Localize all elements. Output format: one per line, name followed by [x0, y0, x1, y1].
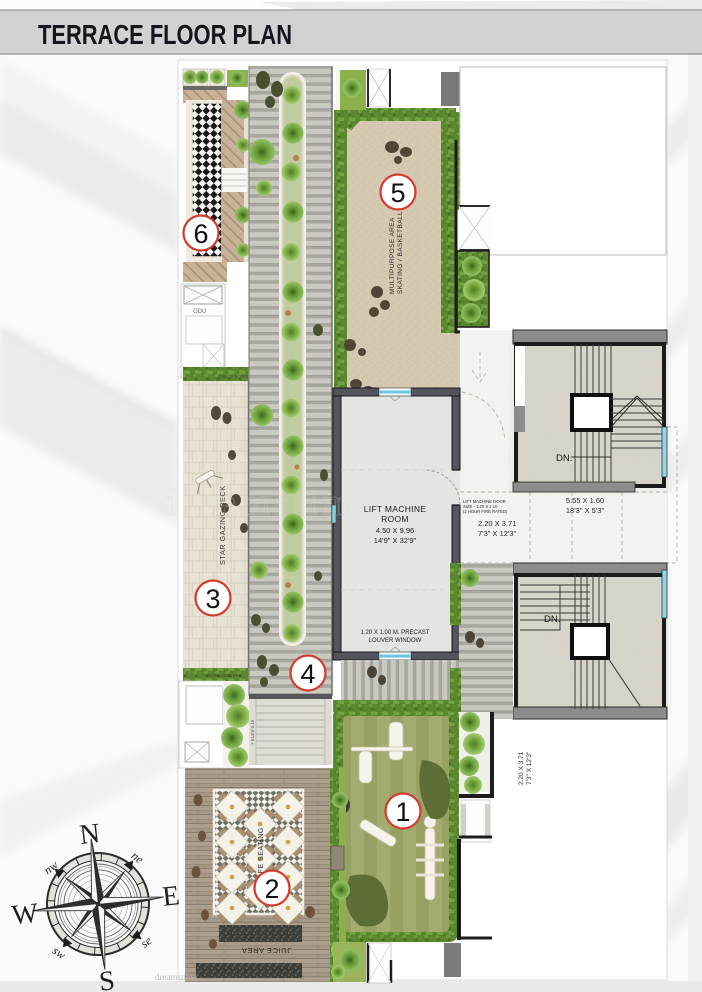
svg-text:GREEN SCREENS: GREEN SCREENS: [205, 673, 242, 678]
svg-text:MULTIPURPOSE AREA: MULTIPURPOSE AREA: [389, 217, 396, 294]
svg-text:1: 1: [395, 797, 410, 827]
svg-text:4: 4: [300, 659, 315, 689]
svg-text:dreamstime: dreamstime: [159, 482, 376, 524]
svg-text:(2 HOUR FIRE RATED): (2 HOUR FIRE RATED): [463, 509, 508, 514]
svg-text:14'9" X 32'9": 14'9" X 32'9": [374, 536, 417, 545]
svg-text:E: E: [161, 880, 181, 913]
svg-text:5: 5: [390, 178, 405, 208]
svg-text:4.50 X 9.96: 4.50 X 9.96: [376, 526, 414, 535]
svg-text:SKATING / BASKETBALL: SKATING / BASKETBALL: [397, 211, 404, 294]
svg-text:dreamstime: dreamstime: [155, 972, 197, 982]
svg-text:3: 3: [205, 584, 220, 614]
svg-text:1.20 X 1.00 M. PRECAST: 1.20 X 1.00 M. PRECAST: [360, 630, 429, 636]
svg-text:TERRACE FLOOR PLAN: TERRACE FLOOR PLAN: [38, 19, 292, 50]
svg-text:DN.: DN.: [556, 453, 572, 464]
svg-text:7'3" X 12'3": 7'3" X 12'3": [526, 751, 533, 785]
svg-text:LOUVER WINDOW: LOUVER WINDOW: [369, 638, 422, 644]
svg-text:ODU: ODU: [193, 309, 206, 315]
svg-text:2: 2: [264, 874, 279, 904]
svg-text:JUICE AREA: JUICE AREA: [241, 946, 291, 955]
svg-text:2.20 X 3.71: 2.20 X 3.71: [518, 751, 525, 785]
svg-text:DN.: DN.: [544, 614, 560, 625]
svg-text:N: N: [78, 818, 101, 851]
svg-text:18'3" X 5'3": 18'3" X 5'3": [566, 506, 605, 515]
svg-text:W: W: [10, 898, 40, 932]
svg-text:+ ELEV 0.15: + ELEV 0.15: [250, 719, 255, 745]
svg-text:ROOM: ROOM: [381, 514, 409, 524]
svg-text:7'3" X 12'3": 7'3" X 12'3": [478, 529, 517, 538]
svg-text:6: 6: [193, 219, 208, 249]
svg-text:5.55 X 1.60: 5.55 X 1.60: [566, 496, 604, 505]
svg-text:2.20 X 3.71: 2.20 X 3.71: [478, 519, 516, 528]
